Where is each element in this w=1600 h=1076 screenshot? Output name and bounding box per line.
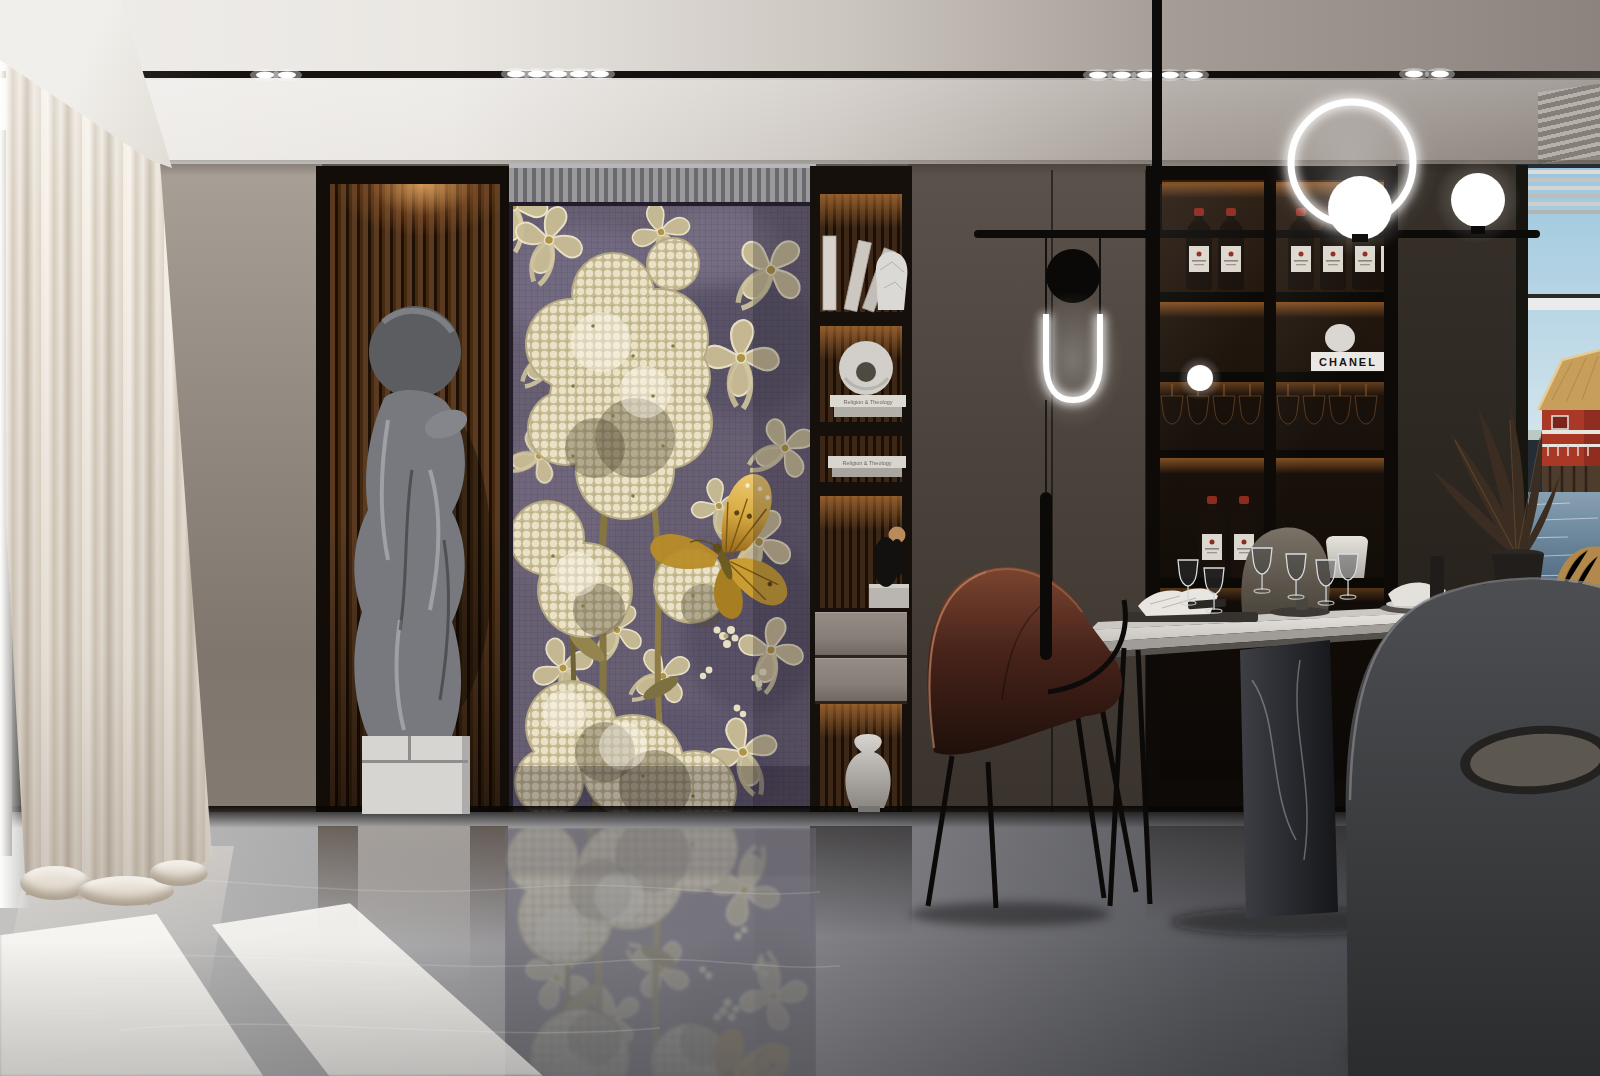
shelf-drawer-upper xyxy=(815,612,907,658)
wall-panel-seam xyxy=(1051,170,1053,818)
glass-sheen xyxy=(1276,184,1384,744)
floor-vignette xyxy=(0,940,1600,1076)
niche-lower-shadow xyxy=(330,520,500,808)
far-right-wall xyxy=(1396,164,1518,820)
dining-room-scene: Religion & Theology Religion & Theology xyxy=(0,0,1600,1076)
cubby-glow xyxy=(820,194,902,228)
cubby-glow xyxy=(820,496,902,530)
side-window xyxy=(1516,164,1600,820)
mosaic-mural xyxy=(513,206,812,812)
ceiling-cove-sheen xyxy=(0,80,1600,168)
curtain-pool xyxy=(150,860,208,886)
shelf-cubby-3 xyxy=(820,436,902,482)
recessed-light-track xyxy=(0,71,1600,78)
niche-downlight-glow xyxy=(330,184,500,424)
ac-vent-grille xyxy=(1538,84,1600,165)
cubby-glow xyxy=(820,326,902,360)
shelf-floor-reflection xyxy=(810,826,912,936)
cabinet-floor-reflection xyxy=(1146,826,1398,921)
baseboard-shadow xyxy=(0,806,1600,828)
shelf-drawer-lower xyxy=(815,658,907,704)
cubby-glow xyxy=(820,704,902,738)
right-wall-panels xyxy=(908,164,1150,820)
glass-sheen xyxy=(1160,184,1264,744)
